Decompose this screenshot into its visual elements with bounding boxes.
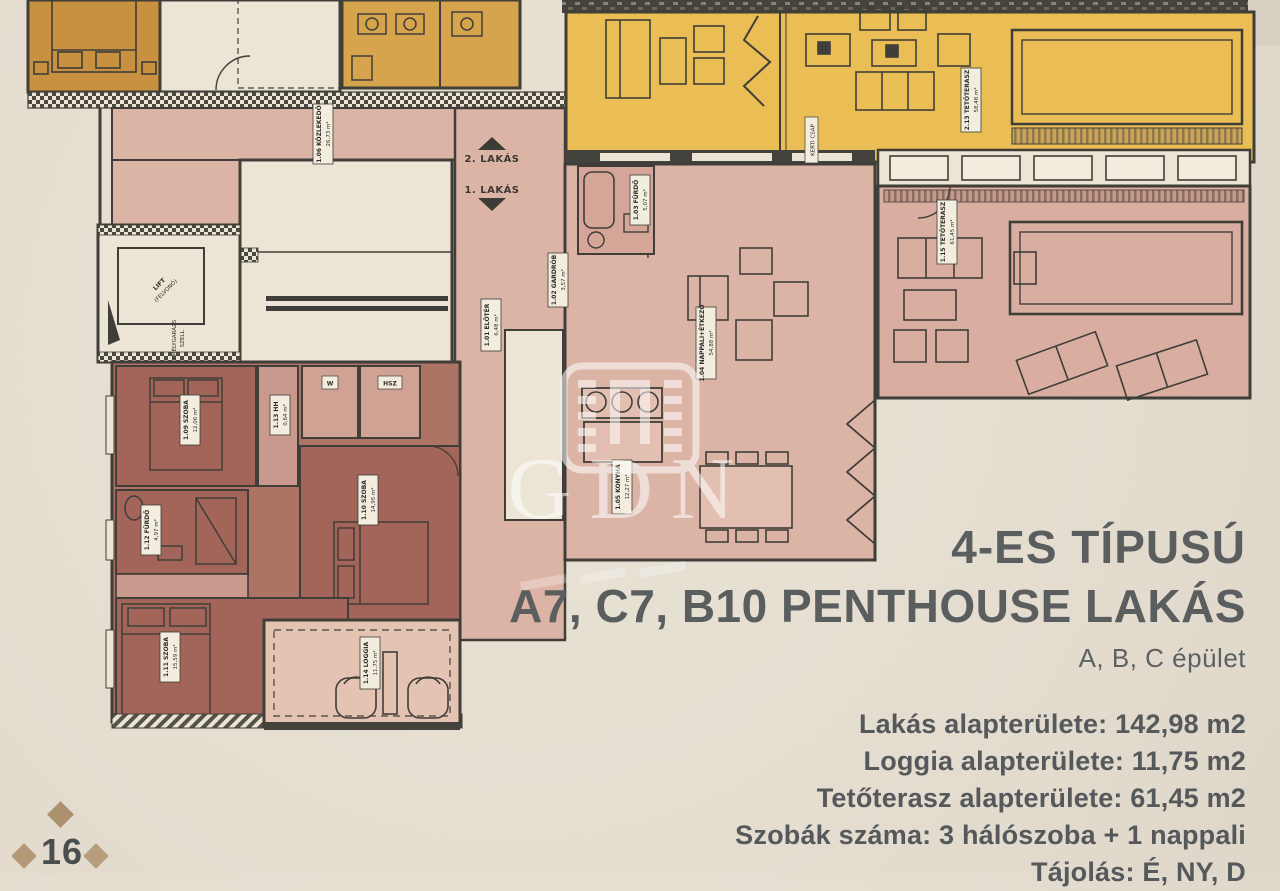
yellow-terrace-unit2	[566, 8, 1254, 162]
label-kozlekedo-name: 1.06 KÖZLEKEDŐ	[316, 105, 323, 162]
label-furdo03-area: 5,07 m²	[642, 189, 649, 211]
label-szoba11-area: 15,59 m²	[172, 644, 179, 669]
terrace1-pool	[1010, 222, 1242, 314]
room-label-tetoterasz1: 1.15 TETŐTERASZ 61,45 m²	[937, 200, 957, 264]
room-label-hsz: HSZ	[378, 376, 402, 389]
stair-core	[240, 160, 452, 362]
label-konyha-name: 1.05 KONYHA	[615, 464, 622, 510]
label-hsz: HSZ	[383, 381, 397, 388]
unit-direction-arrows: 2. LAKÁS 1. LAKÁS	[464, 137, 519, 211]
page-number: 16	[41, 831, 83, 873]
label-konyha-area: 12,27 m²	[624, 474, 631, 499]
spec-room-count: Szobák száma: 3 hálószoba + 1 nappali	[735, 817, 1246, 854]
label-tetoterasz2-area: 58,48 m²	[973, 87, 980, 112]
label-tetoterasz1-name: 1.15 TETŐTERASZ	[940, 201, 947, 262]
room-label-w: W	[322, 376, 338, 389]
room-label-lift: LIFT (FELVONÓ)	[146, 271, 178, 303]
brochure-page: 2. LAKÁS 1. LAKÁS 1.06 KÖZLEKEDŐ 26,73 m…	[0, 0, 1280, 874]
terrace2-furniture	[606, 8, 970, 110]
orange-bath-rooms	[342, 0, 520, 88]
label-w: W	[327, 381, 334, 388]
label-loggia-name: 1.14 LOGGIA	[363, 641, 370, 684]
gdn-logo-icon	[564, 366, 696, 470]
spec-apartment-area: Lakás alapterülete: 142,98 m2	[735, 706, 1246, 743]
label-lift-sub: (FELVONÓ)	[153, 278, 179, 304]
living-sofas	[688, 248, 808, 360]
room-label-hh: 1.13 HH 0,64 m²	[270, 395, 290, 435]
label-nappali-area: 54,88 m²	[708, 330, 715, 355]
bathroom-103	[578, 166, 654, 254]
room-label-tetoterasz2: 2.13 TETŐTERASZ 58,48 m²	[961, 68, 981, 132]
spec-list: Lakás alapterülete: 142,98 m2 Loggia ala…	[735, 706, 1246, 891]
spec-roof-terrace-area: Tetőterasz alapterülete: 61,45 m2	[735, 780, 1246, 817]
label-szoba10-area: 14,95 m²	[370, 487, 377, 512]
label-melygarazs-sub: SZELL.	[180, 328, 186, 347]
unit1-arrow-label: 1. LAKÁS	[464, 183, 519, 196]
lift-block	[98, 108, 240, 362]
label-eloter-area: 6,48 m²	[493, 314, 500, 336]
room-hsz	[360, 366, 420, 438]
title-buildings: A, B, C épület	[509, 643, 1246, 674]
label-melygarazs-name: MÉLYGARÁZS	[170, 319, 178, 356]
closet-113	[258, 366, 298, 486]
title-block: 4-ES TÍPUSÚ A7, C7, B10 PENTHOUSE LAKÁS …	[509, 518, 1246, 674]
label-nappali-name: 1.04 NAPPALI+ÉTKEZŐ	[698, 305, 706, 382]
loggia	[264, 620, 460, 730]
room-label-kerticsap: KERTI CSAP	[805, 117, 818, 163]
room-label-szoba09: 1.09 SZOBA 12,06 m²	[180, 395, 200, 445]
bathroom-112	[116, 490, 248, 574]
label-furdo12-area: 4,97 m²	[153, 519, 160, 541]
label-kozlekedo-area: 26,73 m²	[325, 121, 332, 146]
room-label-kozlekedo: 1.06 KÖZLEKEDŐ 26,73 m²	[313, 104, 333, 164]
roof-terrace-unit1	[878, 186, 1250, 400]
label-hh-area: 0,64 m²	[282, 404, 289, 426]
orange-bedroom	[28, 0, 160, 92]
title-type: 4-ES TÍPUSÚ	[509, 518, 1246, 577]
wall-hatched-top	[28, 92, 565, 108]
room-label-gardrob: 1.02 GARDRÓB 3,57 m²	[548, 253, 568, 307]
label-tetoterasz1-area: 61,45 m²	[949, 219, 956, 244]
label-furdo12-name: 1.12 FÜRDŐ	[144, 510, 151, 551]
label-szoba11-name: 1.11 SZOBA	[163, 637, 170, 677]
bedroom-109	[116, 366, 256, 486]
spec-loggia-area: Loggia alapterülete: 11,75 m2	[735, 743, 1246, 780]
label-szoba09-name: 1.09 SZOBA	[183, 400, 190, 440]
label-lift-name: LIFT	[152, 276, 168, 292]
label-kerticsap: KERTI CSAP	[811, 123, 817, 155]
label-szoba10-name: 1.10 SZOBA	[361, 480, 368, 520]
spec-orientation: Tájolás: É, NY, D	[735, 854, 1246, 891]
page-number-block: 16	[0, 795, 130, 874]
top-cream-room	[160, 0, 452, 92]
label-loggia-area: 11,75 m²	[372, 650, 379, 675]
label-gardrob-name: 1.02 GARDRÓB	[551, 254, 558, 305]
room-label-konyha: 1.05 KONYHA 12,27 m²	[612, 460, 632, 514]
room-label-loggia: 1.14 LOGGIA 11,75 m²	[360, 637, 380, 689]
room-label-nappali: 1.04 NAPPALI+ÉTKEZŐ 54,88 m²	[696, 305, 716, 382]
room-label-szoba10: 1.10 SZOBA 14,95 m²	[358, 475, 378, 525]
diamond-icon	[47, 801, 74, 828]
diamond-icon	[83, 843, 108, 868]
room-label-furdo03: 1.03 FÜRDŐ 5,07 m²	[630, 175, 650, 225]
label-hh-name: 1.13 HH	[273, 402, 280, 429]
room-label-eloter: 1.01 ELŐTÉR 6,48 m²	[481, 299, 501, 351]
room-w	[302, 366, 358, 438]
terrace2-planter	[1012, 30, 1242, 124]
roof-texture-band	[562, 0, 1280, 46]
room-label-szoba11: 1.11 SZOBA 15,59 m²	[160, 632, 180, 682]
label-szoba09-area: 12,06 m²	[192, 407, 199, 432]
kitchen	[505, 330, 662, 520]
room-label-furdo12: 1.12 FÜRDŐ 4,97 m²	[141, 505, 161, 555]
label-tetoterasz2-name: 2.13 TETŐTERASZ	[964, 69, 971, 130]
label-furdo03-name: 1.03 FÜRDŐ	[633, 180, 640, 221]
room-label-melygarazs: MÉLYGARÁZS SZELL.	[170, 319, 186, 356]
terrace1-furniture	[894, 238, 1208, 400]
label-eloter-name: 1.01 ELŐTÉR	[483, 303, 491, 346]
gdn-watermark: GDN	[508, 366, 753, 538]
window-band	[566, 150, 1250, 186]
bedroom-111	[116, 598, 348, 722]
unit2-arrow-label: 2. LAKÁS	[464, 152, 519, 165]
bedroom-wing	[106, 362, 462, 728]
diamond-icon	[11, 843, 36, 868]
label-gardrob-area: 3,57 m²	[560, 269, 567, 291]
title-units: A7, C7, B10 PENTHOUSE LAKÁS	[509, 577, 1246, 636]
bedroom-110	[300, 446, 460, 622]
